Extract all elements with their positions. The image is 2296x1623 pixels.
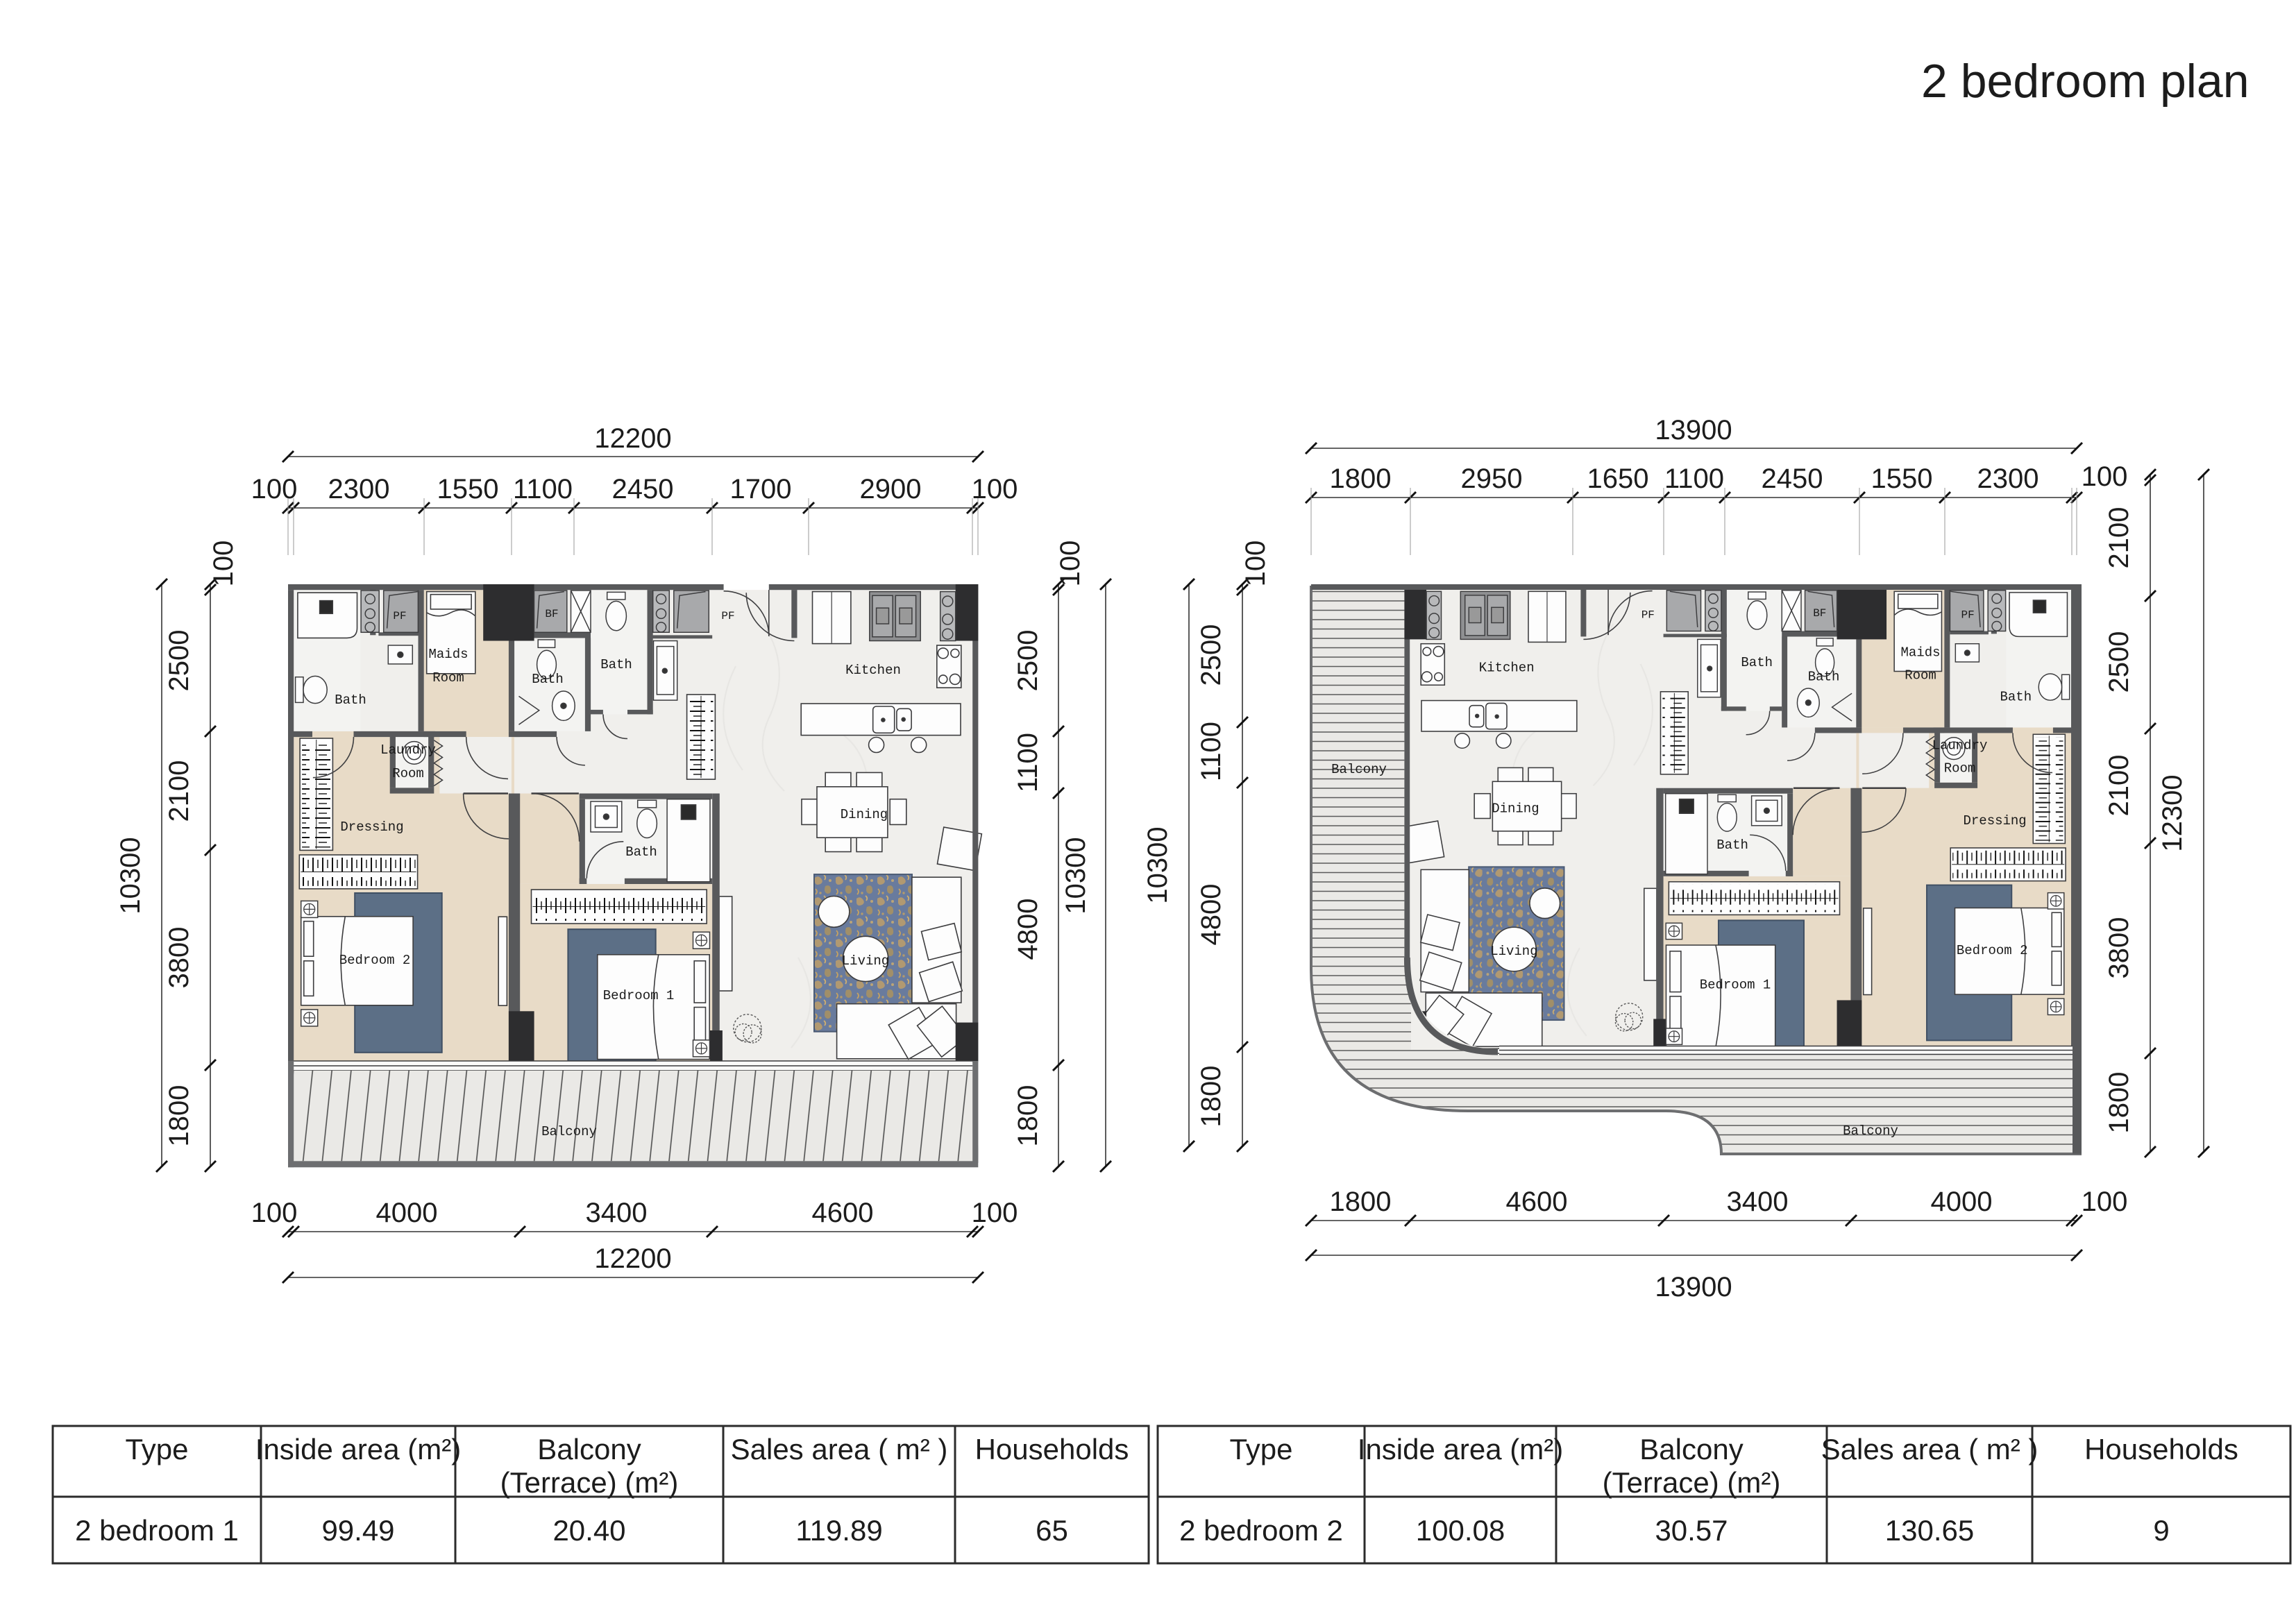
svg-text:100: 100 [2082,461,2128,492]
svg-text:2500: 2500 [1196,624,1226,686]
svg-text:1800: 1800 [2104,1072,2134,1134]
svg-text:30.57: 30.57 [1655,1514,1728,1547]
svg-text:1550: 1550 [437,474,499,504]
svg-text:Dining: Dining [841,807,888,822]
svg-text:(Terrace) (m²): (Terrace) (m²) [500,1466,679,1499]
svg-text:Laundry: Laundry [1932,738,1988,754]
svg-text:2300: 2300 [1977,464,2039,494]
svg-text:4800: 4800 [1196,884,1226,946]
svg-text:Bath: Bath [600,657,632,672]
svg-text:Balcony: Balcony [1331,762,1387,777]
svg-text:Bedroom 2: Bedroom 2 [1957,943,2028,958]
svg-text:100.08: 100.08 [1416,1514,1505,1547]
svg-text:1800: 1800 [1330,1187,1392,1217]
svg-text:2100: 2100 [164,760,194,822]
svg-text:100: 100 [2082,1187,2128,1217]
svg-text:2100: 2100 [2104,507,2134,569]
svg-text:3800: 3800 [164,927,194,989]
svg-text:Living: Living [842,953,889,969]
svg-text:10300: 10300 [1061,837,1091,914]
svg-text:99.49: 99.49 [321,1514,394,1547]
svg-text:PF: PF [1961,609,1974,622]
svg-text:Dressing: Dressing [1963,813,2026,829]
svg-text:4600: 4600 [812,1198,874,1228]
svg-text:100: 100 [972,1198,1018,1228]
svg-text:2 bedroom 2: 2 bedroom 2 [1179,1514,1343,1547]
svg-text:100: 100 [1055,541,1086,587]
svg-text:1100: 1100 [1664,464,1724,494]
svg-text:130.65: 130.65 [1885,1514,1974,1547]
svg-text:1800: 1800 [164,1085,194,1147]
svg-text:Bath: Bath [532,672,564,687]
svg-text:2500: 2500 [2104,631,2134,693]
svg-text:PF: PF [393,610,406,622]
svg-text:Room: Room [1905,668,1936,683]
svg-text:2 bedroom 1: 2 bedroom 1 [75,1514,239,1547]
svg-text:100: 100 [251,474,298,504]
svg-text:4600: 4600 [1506,1187,1568,1217]
svg-text:100: 100 [1240,541,1271,587]
svg-text:Maids: Maids [1900,645,1940,660]
svg-text:Room: Room [432,670,464,686]
svg-text:Sales area ( m² ): Sales area ( m² ) [1821,1433,2038,1465]
svg-text:Balcony: Balcony [1843,1123,1898,1139]
svg-text:65: 65 [1036,1514,1068,1547]
svg-text:2 bedroom plan: 2 bedroom plan [1921,55,2249,108]
svg-text:1100: 1100 [513,474,573,504]
svg-text:Dining: Dining [1492,801,1539,816]
svg-text:Households: Households [2084,1433,2238,1465]
svg-text:1800: 1800 [1330,464,1392,494]
svg-text:Kitchen: Kitchen [845,663,901,678]
svg-text:Bath: Bath [625,844,657,860]
svg-text:Balcony: Balcony [537,1433,641,1465]
svg-text:Room: Room [392,766,424,781]
svg-text:1800: 1800 [1013,1085,1043,1147]
svg-text:100: 100 [251,1198,298,1228]
svg-text:13900: 13900 [1655,415,1732,445]
svg-text:13900: 13900 [1655,1272,1732,1302]
svg-text:2900: 2900 [860,474,922,504]
svg-text:2450: 2450 [612,474,674,504]
svg-text:12300: 12300 [2157,774,2188,851]
svg-text:2500: 2500 [164,630,194,692]
svg-text:Households: Households [975,1433,1129,1465]
svg-text:Bedroom 1: Bedroom 1 [603,988,675,1003]
svg-text:2300: 2300 [328,474,390,504]
svg-text:1800: 1800 [1196,1066,1226,1128]
svg-text:Maids: Maids [428,647,468,662]
svg-text:BF: BF [1813,607,1826,620]
svg-text:Inside area (m²): Inside area (m²) [255,1433,461,1465]
svg-text:2100: 2100 [2104,755,2134,817]
svg-text:PF: PF [1641,609,1655,622]
svg-text:Bath: Bath [2000,690,2032,705]
svg-text:Bath: Bath [1716,838,1748,853]
svg-text:1550: 1550 [1871,464,1933,494]
svg-text:Bath: Bath [335,692,366,708]
svg-text:Bath: Bath [1741,655,1773,670]
svg-text:100: 100 [208,541,239,587]
svg-text:Dressing: Dressing [340,819,403,835]
svg-text:3400: 3400 [1727,1187,1789,1217]
svg-text:2500: 2500 [1013,630,1043,692]
svg-text:Bedroom 1: Bedroom 1 [1700,978,1771,993]
svg-text:PF: PF [721,610,734,622]
svg-text:20.40: 20.40 [552,1514,625,1547]
svg-text:Laundry: Laundry [380,742,436,758]
svg-text:1650: 1650 [1587,464,1649,494]
svg-text:1100: 1100 [1013,733,1043,792]
svg-text:Balcony: Balcony [1639,1433,1743,1465]
svg-text:Sales area ( m² ): Sales area ( m² ) [731,1433,948,1465]
svg-text:12200: 12200 [594,423,671,454]
svg-text:2950: 2950 [1461,464,1523,494]
svg-text:9: 9 [2153,1514,2169,1547]
svg-text:Balcony: Balcony [541,1124,597,1139]
svg-text:10300: 10300 [115,837,146,914]
svg-text:119.89: 119.89 [795,1514,882,1547]
svg-text:10300: 10300 [1142,826,1173,903]
svg-text:3800: 3800 [2104,917,2134,979]
svg-text:1100: 1100 [1196,722,1226,781]
svg-text:2450: 2450 [1762,464,1823,494]
svg-text:(Terrace) (m²): (Terrace) (m²) [1603,1466,1781,1499]
svg-text:4000: 4000 [376,1198,438,1228]
svg-text:100: 100 [972,474,1018,504]
svg-text:Living: Living [1490,944,1537,959]
svg-text:BF: BF [545,608,558,620]
svg-text:Bath: Bath [1808,669,1840,684]
svg-text:12200: 12200 [594,1243,671,1274]
svg-text:4800: 4800 [1013,899,1043,960]
svg-text:1700: 1700 [730,474,792,504]
svg-text:Type: Type [1229,1433,1292,1465]
svg-text:Type: Type [125,1433,188,1465]
svg-text:Inside area (m²): Inside area (m²) [1358,1433,1563,1465]
svg-text:Bedroom 2: Bedroom 2 [339,953,411,968]
svg-text:4000: 4000 [1931,1187,1993,1217]
svg-text:Kitchen: Kitchen [1479,661,1535,676]
svg-text:Room: Room [1944,761,1976,776]
svg-text:3400: 3400 [586,1198,648,1228]
